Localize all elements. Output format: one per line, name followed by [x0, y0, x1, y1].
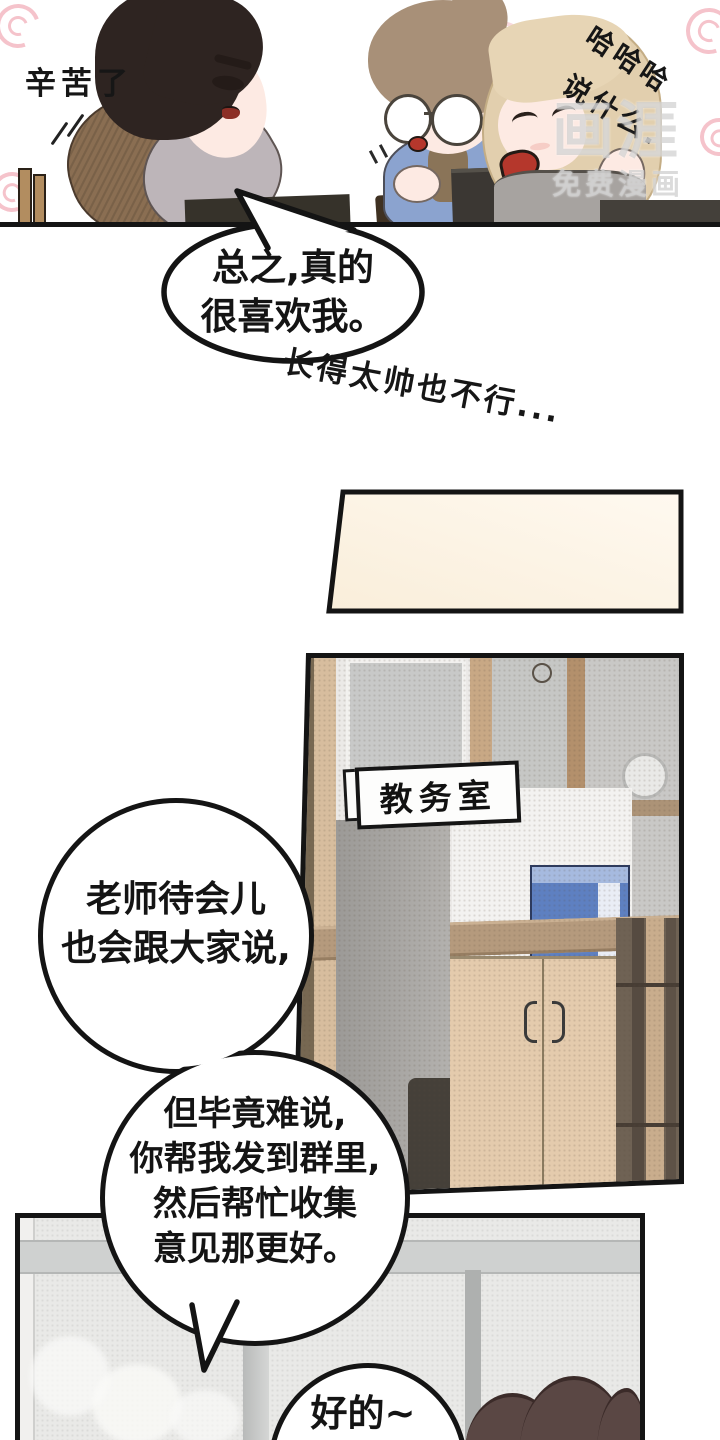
line: 意见那更好。	[98, 1227, 412, 1272]
plant-blob	[170, 1390, 240, 1440]
speech-bubble-ok-text: 好的~	[268, 1390, 458, 1439]
chair-back-bar	[18, 168, 32, 226]
motion-line	[51, 122, 69, 146]
office-sign-text: 教务室	[379, 768, 498, 821]
boy1-mouth	[222, 106, 240, 119]
speech-bubble-1-text: 总之,真的 很喜欢我。	[175, 244, 411, 342]
watermark: 画涯 免费漫画	[552, 100, 712, 199]
speech-bubble-group-text: 但毕竟难说, 你帮我发到群里, 然后帮忙收集 意见那更好。	[98, 1092, 412, 1272]
spiral-doodle-icon	[678, 0, 720, 61]
plant-blob	[92, 1364, 182, 1440]
line: 很喜欢我。	[175, 293, 411, 342]
boy2-glasses-bridge	[424, 112, 434, 115]
line: 然后帮忙收集	[98, 1182, 412, 1227]
motion-line	[379, 144, 388, 158]
office-sign: 教务室	[355, 760, 522, 829]
chair-back-bar	[33, 174, 46, 226]
watermark-tagline: 免费漫画	[552, 170, 712, 199]
speech-bubble-group-tail	[170, 1290, 280, 1385]
boy2-mouth	[408, 136, 428, 152]
line: 总之,真的	[175, 244, 411, 293]
line: 你帮我发到群里,	[98, 1137, 412, 1182]
motion-line	[369, 150, 378, 164]
line: 老师待会儿	[40, 876, 312, 925]
spiral-doodle-icon	[0, 0, 47, 55]
narration-box	[315, 480, 695, 625]
boy2-glasses-right	[431, 94, 483, 146]
speech-bubble-teacher-text: 老师待会儿 也会跟大家说,	[40, 876, 312, 973]
watermark-logo: 画涯	[552, 100, 712, 162]
comic-page: 辛苦了 哈哈哈 说什么. 画涯 免费漫画 总之,真的 很喜欢我。 长得太帅也不行…	[0, 0, 720, 1440]
line: 也会跟大家说,	[40, 925, 312, 974]
line: 但毕竟难说,	[98, 1092, 412, 1137]
desk-right	[600, 200, 720, 224]
boy2-glasses-left	[384, 94, 432, 144]
sfx-good-work: 辛苦了	[25, 58, 133, 103]
